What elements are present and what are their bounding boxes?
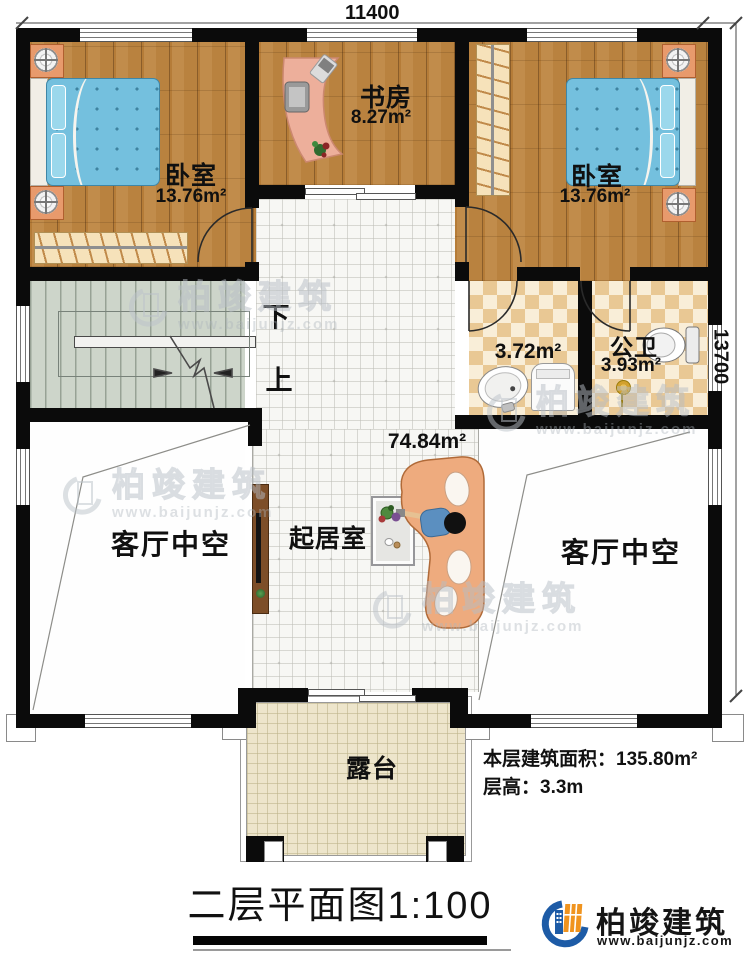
bed-icon xyxy=(46,78,160,186)
lamp-icon xyxy=(666,48,690,72)
pillow-icon xyxy=(51,85,66,130)
plant-icon xyxy=(256,589,265,598)
floor-plan: 11400 13700 卧室 13.76m² 书房 8.27m² 卧室 13.7… xyxy=(0,0,750,967)
window-bottom-void-left xyxy=(85,714,191,728)
wardrobe-icon xyxy=(34,232,188,264)
room-area-living: 74.84m² xyxy=(388,430,466,454)
room-area-bath-small: 3.72m² xyxy=(495,340,562,364)
nightstand-icon xyxy=(662,188,696,222)
room-label-living: 起居室 xyxy=(289,519,367,555)
tv-cabinet-icon xyxy=(252,484,269,614)
wall-bedroom1-east xyxy=(245,28,259,208)
wall-bath-north-1 xyxy=(517,267,580,281)
window-left-stairs xyxy=(16,306,30,382)
window-left-void xyxy=(16,449,30,505)
stairs-down-label: 下 xyxy=(263,296,290,335)
brand-website: www.baijunjz.com xyxy=(597,933,733,948)
nightstand-icon xyxy=(662,44,696,78)
terrace-column-notch-right xyxy=(428,841,447,862)
window-top-bedroom-right xyxy=(527,28,637,42)
quilt-fold xyxy=(73,78,120,186)
dimension-top: 11400 xyxy=(345,2,400,25)
room-label-terrace: 露台 xyxy=(346,749,398,785)
room-label-void-right: 客厅中空 xyxy=(561,531,681,571)
room-area-bedroom-left: 13.76m² xyxy=(156,186,227,208)
lamp-icon xyxy=(666,192,690,216)
sliding-door-study-2 xyxy=(356,193,416,200)
terrace-column-notch-left xyxy=(264,841,283,862)
room-area-bedroom-right: 13.76m² xyxy=(560,186,631,208)
wall-bath-north-2 xyxy=(630,267,722,281)
note-floor-area: 本层建筑面积：135.80m² xyxy=(483,744,697,771)
bed-headboard xyxy=(678,78,696,186)
stairs-up-label: 上 xyxy=(266,359,293,398)
floor-drain-icon xyxy=(616,380,631,395)
page-title: 二层平面图1:100 xyxy=(187,874,492,929)
sliding-door-terrace-2 xyxy=(359,695,416,702)
terrace-corner-left xyxy=(238,688,256,728)
lamp-icon xyxy=(34,190,58,214)
coffee-table-icon xyxy=(371,496,415,566)
brand-logo-icon xyxy=(540,894,590,952)
note-floor-height: 层高：3.3m xyxy=(483,772,583,799)
stairwell-outline xyxy=(58,311,250,377)
room-area-study: 8.27m² xyxy=(351,107,411,129)
window-top-study xyxy=(307,28,417,42)
sliding-door-terrace-1 xyxy=(308,689,365,696)
pillow-icon xyxy=(660,85,675,130)
washer-panel xyxy=(536,369,570,379)
void-left-floor xyxy=(30,422,245,714)
living-floor xyxy=(253,429,478,692)
nightstand-icon xyxy=(30,44,64,78)
floor-drain-stem xyxy=(621,393,623,407)
title-underline xyxy=(193,936,487,945)
window-right-void xyxy=(708,449,722,505)
wall-study-east xyxy=(455,28,469,207)
wall-void-corner-stub xyxy=(248,408,262,446)
wall-bedroom2-west-stub xyxy=(455,262,469,281)
wall-bath-south xyxy=(455,415,722,429)
wall-study-south-left xyxy=(259,185,305,199)
wall-stairs-south xyxy=(16,408,262,422)
tv-icon xyxy=(256,513,261,583)
wall-bath-mid xyxy=(578,281,592,415)
title-underline-thin xyxy=(193,949,511,951)
wall-bedroom1-south xyxy=(16,267,259,281)
nightstand-icon xyxy=(30,186,64,220)
terrace-corner-right xyxy=(450,688,468,728)
washing-machine-icon xyxy=(531,363,575,411)
pillow-icon xyxy=(51,133,66,178)
room-area-bath-public: 3.93m² xyxy=(601,355,661,377)
window-bottom-void-right xyxy=(531,714,637,728)
dimension-right: 13700 xyxy=(709,327,732,387)
pillow-icon xyxy=(660,133,675,178)
void-right-floor xyxy=(478,429,708,714)
lamp-icon xyxy=(34,48,58,72)
wardrobe-icon xyxy=(476,44,510,196)
void-right-edge xyxy=(478,429,479,692)
room-label-void-left: 客厅中空 xyxy=(111,523,231,563)
window-top-bedroom-left xyxy=(80,28,192,42)
